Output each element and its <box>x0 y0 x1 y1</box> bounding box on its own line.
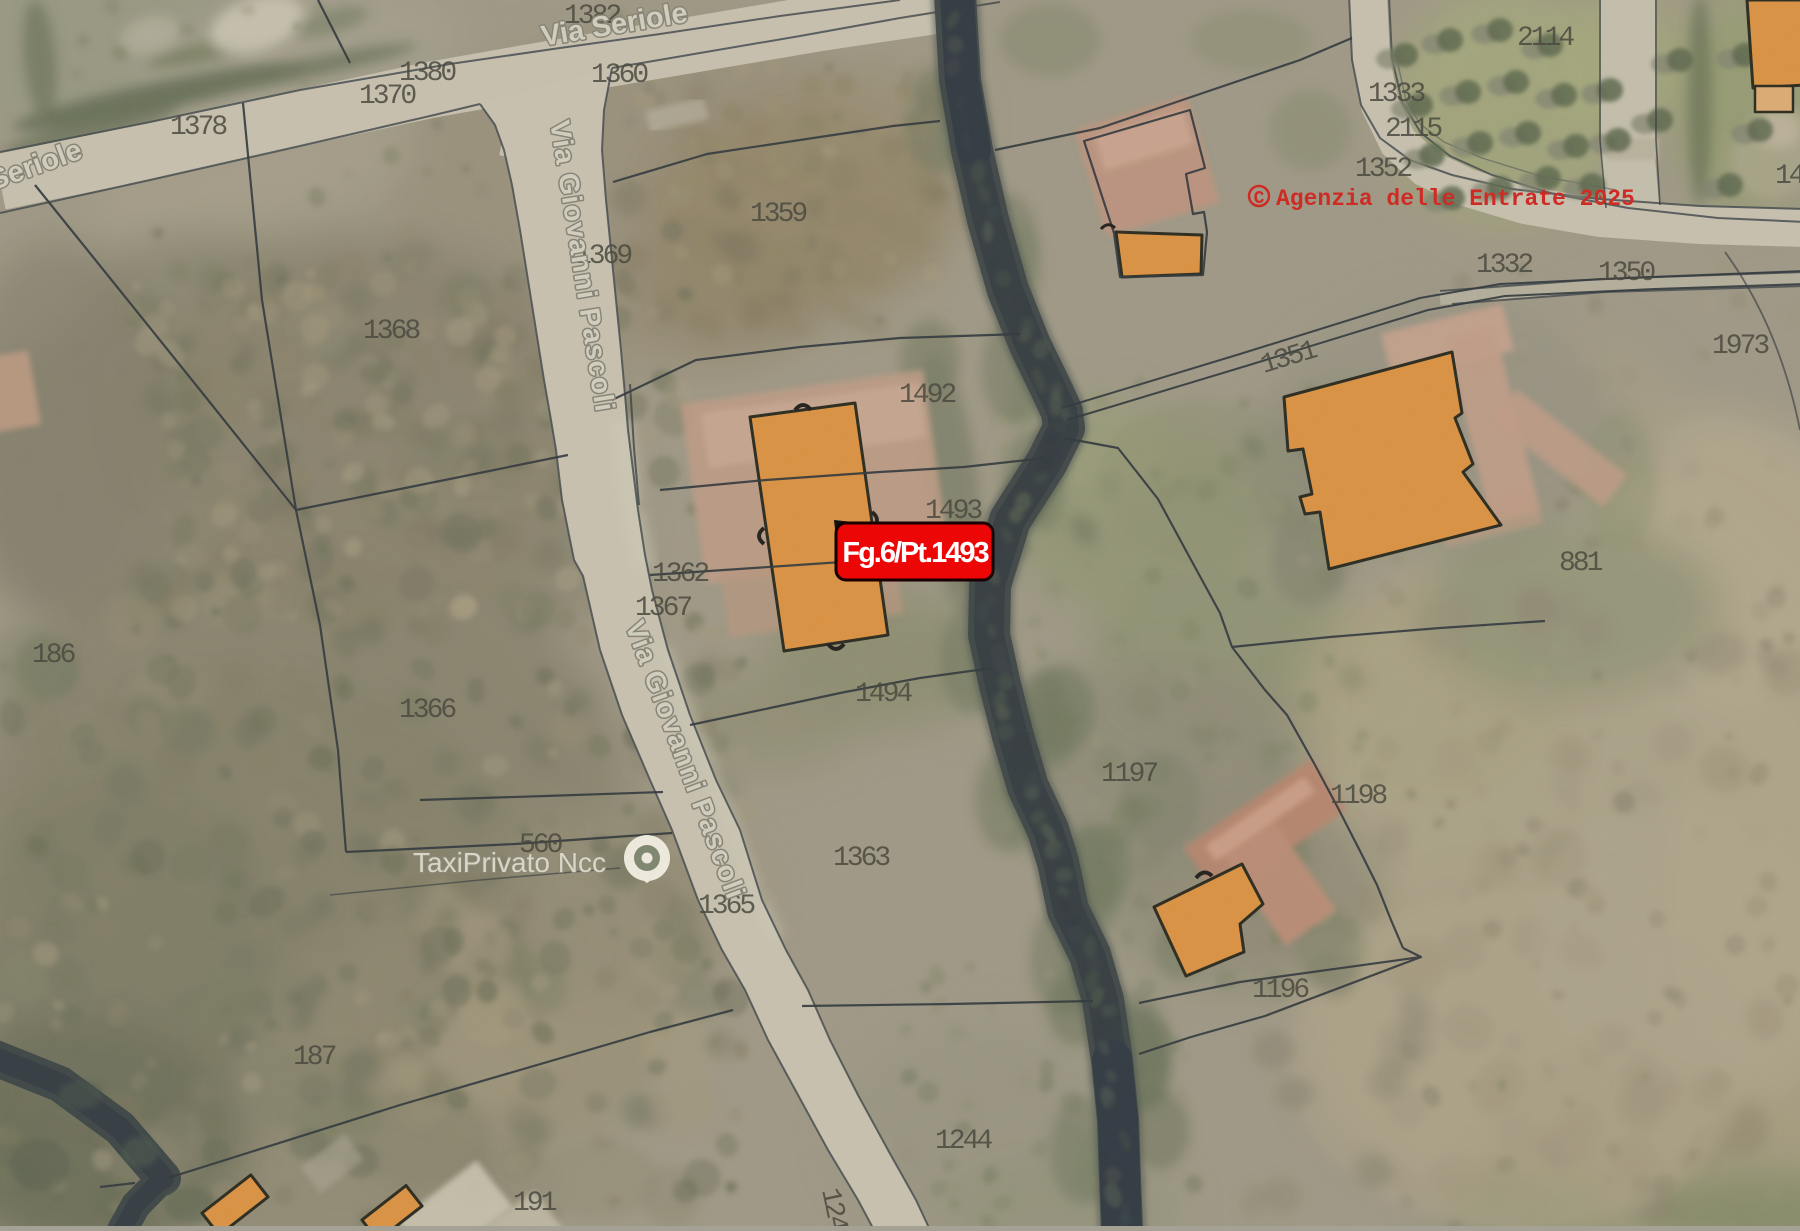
svg-text:Agenzia delle Entrate 2025: Agenzia delle Entrate 2025 <box>1276 186 1635 212</box>
svg-text:C: C <box>1254 189 1265 209</box>
svg-text:Fg.6/Pt.1493: Fg.6/Pt.1493 <box>842 537 989 569</box>
